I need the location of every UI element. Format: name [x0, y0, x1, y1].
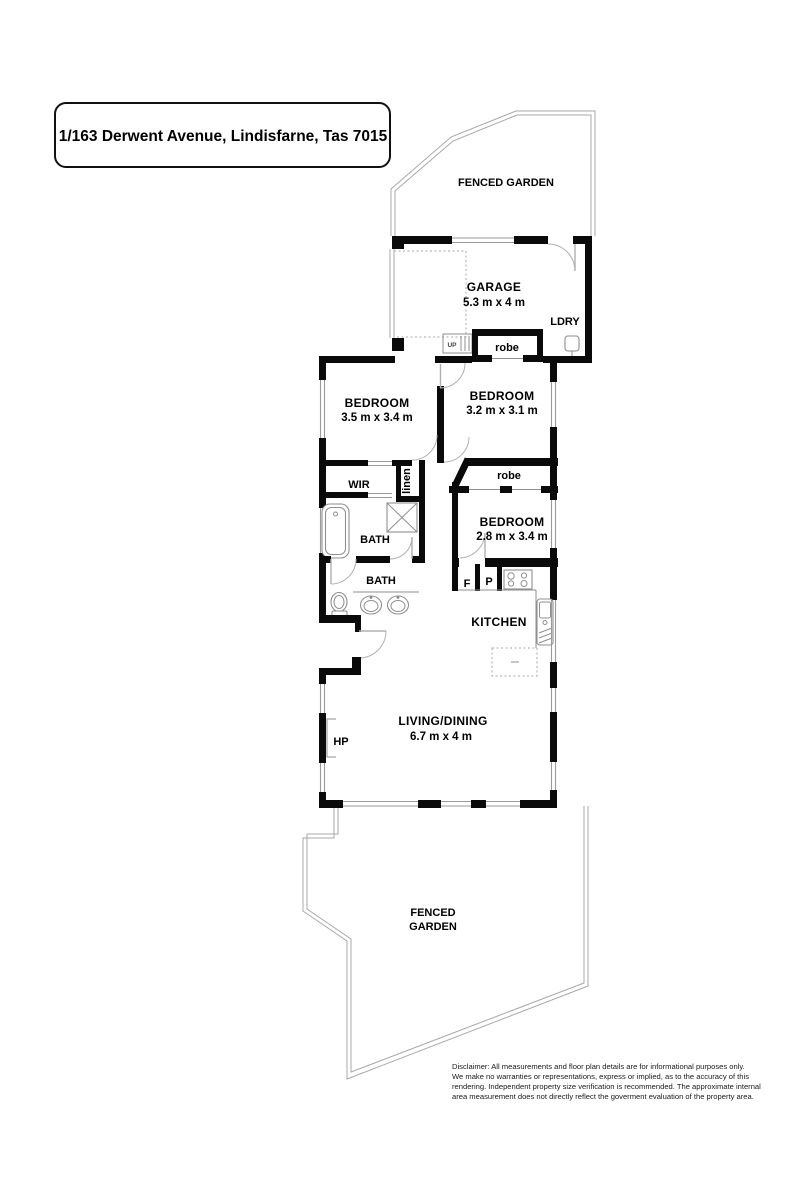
- bedroom3-dims: 2.8 m x 3.4 m: [476, 531, 548, 543]
- disclaimer-line: Disclaimer: All measurements and floor p…: [452, 1062, 745, 1071]
- wir-label: WIR: [348, 479, 369, 491]
- wall-segment: [452, 482, 458, 591]
- garden-bottom-label-line2: GARDEN: [409, 921, 457, 933]
- garage: GARAGE 5.3 m x 4 m: [390, 236, 592, 363]
- bedroom1-dims: 3.5 m x 3.4 m: [341, 412, 413, 424]
- garden-top-fence-inner: [395, 115, 591, 236]
- laundry-label: LDRY: [550, 316, 580, 328]
- wall-segment: [437, 386, 444, 463]
- wall-segment: [475, 564, 480, 591]
- wall-segment: [320, 356, 395, 363]
- wall-segment: [497, 564, 502, 591]
- disclaimer: Disclaimer: All measurements and floor p…: [452, 1062, 761, 1101]
- disclaimer-line: We make no warranties or representations…: [452, 1072, 749, 1081]
- living-dining: HP LIVING/DINING 6.7 m x 4 m: [319, 600, 557, 808]
- tap-icon: [370, 596, 373, 599]
- wall-segment: [550, 362, 557, 382]
- garden-top: FENCED GARDEN: [391, 111, 595, 236]
- wall-stub: [392, 338, 404, 351]
- pantry-label: P: [485, 576, 492, 588]
- wall-segment: [485, 558, 558, 567]
- bedroom3-label: BEDROOM: [480, 515, 545, 529]
- linen-label: linen: [401, 468, 413, 494]
- disclaimer-line: area measurement does not directly refle…: [452, 1092, 754, 1101]
- floorplan-page: 1/163 Derwent Avenue, Lindisfarne, Tas 7…: [0, 0, 800, 1200]
- left-exterior-wall: [319, 356, 326, 615]
- bath-two-label: BATH: [366, 575, 396, 587]
- laundry: LDRY: [550, 316, 580, 357]
- wall-segment: [319, 668, 326, 684]
- door-arc: [331, 559, 356, 584]
- property-address: 1/163 Derwent Avenue, Lindisfarne, Tas 7…: [59, 128, 388, 145]
- wall-segment: [472, 329, 543, 336]
- bedroom2-dims: 3.2 m x 3.1 m: [466, 405, 538, 417]
- wall-segment: [452, 558, 459, 567]
- wall-stub: [392, 236, 404, 249]
- entry: [319, 615, 386, 675]
- laundry-trough-icon: [565, 336, 579, 351]
- door-arc: [412, 435, 437, 460]
- fridge-label: F: [464, 578, 471, 590]
- bath-main: BATH: [319, 503, 425, 563]
- wall-segment: [471, 800, 486, 808]
- title-box: 1/163 Derwent Avenue, Lindisfarne, Tas 7…: [55, 103, 390, 167]
- sliding-door-block: [541, 486, 558, 493]
- wall-segment: [418, 800, 441, 808]
- bath-two: BATH: [319, 559, 419, 623]
- garden-bottom-fence-outer: [303, 806, 588, 1079]
- wall-segment: [435, 356, 472, 363]
- garden-top-label: FENCED GARDEN: [458, 177, 554, 189]
- living-dims: 6.7 m x 4 m: [410, 731, 472, 743]
- wall-segment: [419, 460, 425, 562]
- garden-bottom-fence-inner: [307, 806, 584, 1072]
- bathtub: [326, 508, 346, 555]
- stairs-label: UP: [447, 342, 457, 349]
- garage-label: GARAGE: [467, 280, 521, 294]
- sliding-door-block: [500, 486, 512, 493]
- wall-segment: [543, 356, 592, 363]
- wall-segment: [465, 458, 558, 466]
- cooktop: [504, 570, 532, 589]
- wir: WIR: [322, 460, 392, 498]
- wall-segment: [412, 556, 425, 563]
- heat-pump-label: HP: [333, 736, 348, 748]
- wall-segment: [550, 548, 557, 600]
- disclaimer-line: rendering. Independent property size ver…: [452, 1082, 761, 1091]
- robe-bedroom3-label: robe: [497, 470, 521, 482]
- wall-diagonal: [455, 459, 468, 486]
- robe-garage: robe: [472, 329, 543, 362]
- living-label: LIVING/DINING: [398, 714, 487, 728]
- door-arc: [548, 244, 575, 271]
- wall-segment: [520, 800, 557, 808]
- garage-dims: 5.3 m x 4 m: [463, 297, 525, 309]
- wall-segment: [356, 556, 390, 563]
- wall-segment: [322, 492, 368, 498]
- wall-segment: [322, 460, 368, 466]
- sliding-door-block: [477, 355, 492, 362]
- door-arc: [390, 537, 412, 559]
- wall-segment: [355, 615, 361, 632]
- wall-segment: [319, 356, 326, 380]
- bedroom2-label: BEDROOM: [470, 389, 535, 403]
- bath-main-label: BATH: [360, 534, 390, 546]
- fridge-pantry: F P: [458, 564, 502, 591]
- garden-top-fence-outer: [391, 111, 595, 236]
- garden-bottom: FENCED GARDEN: [303, 806, 588, 1079]
- wall-segment: [396, 496, 425, 502]
- kitchen-label: KITCHEN: [471, 615, 526, 629]
- robe-garage-label: robe: [495, 342, 519, 354]
- tap-icon: [397, 596, 400, 599]
- door-arc: [440, 363, 465, 388]
- wall-segment: [550, 712, 557, 762]
- bedroom1-label: BEDROOM: [345, 396, 410, 410]
- garden-bottom-label-line1: FENCED: [410, 907, 455, 919]
- car-space-dashed: [394, 251, 466, 337]
- wall-segment: [319, 713, 326, 763]
- floorplan-svg: 1/163 Derwent Avenue, Lindisfarne, Tas 7…: [0, 0, 800, 1200]
- kitchen: KITCHEN: [459, 570, 553, 676]
- wall-segment: [392, 460, 412, 466]
- sliding-door-block: [523, 355, 538, 362]
- door-arc: [359, 631, 386, 658]
- wall-segment: [319, 800, 343, 808]
- wall-segment: [550, 662, 557, 688]
- wall-segment: [319, 615, 361, 623]
- bedroom1: BEDROOM 3.5 m x 3.4 m: [341, 396, 413, 424]
- wall-segment: [514, 236, 548, 244]
- wall-segment: [585, 236, 592, 363]
- wall-segment: [319, 556, 331, 563]
